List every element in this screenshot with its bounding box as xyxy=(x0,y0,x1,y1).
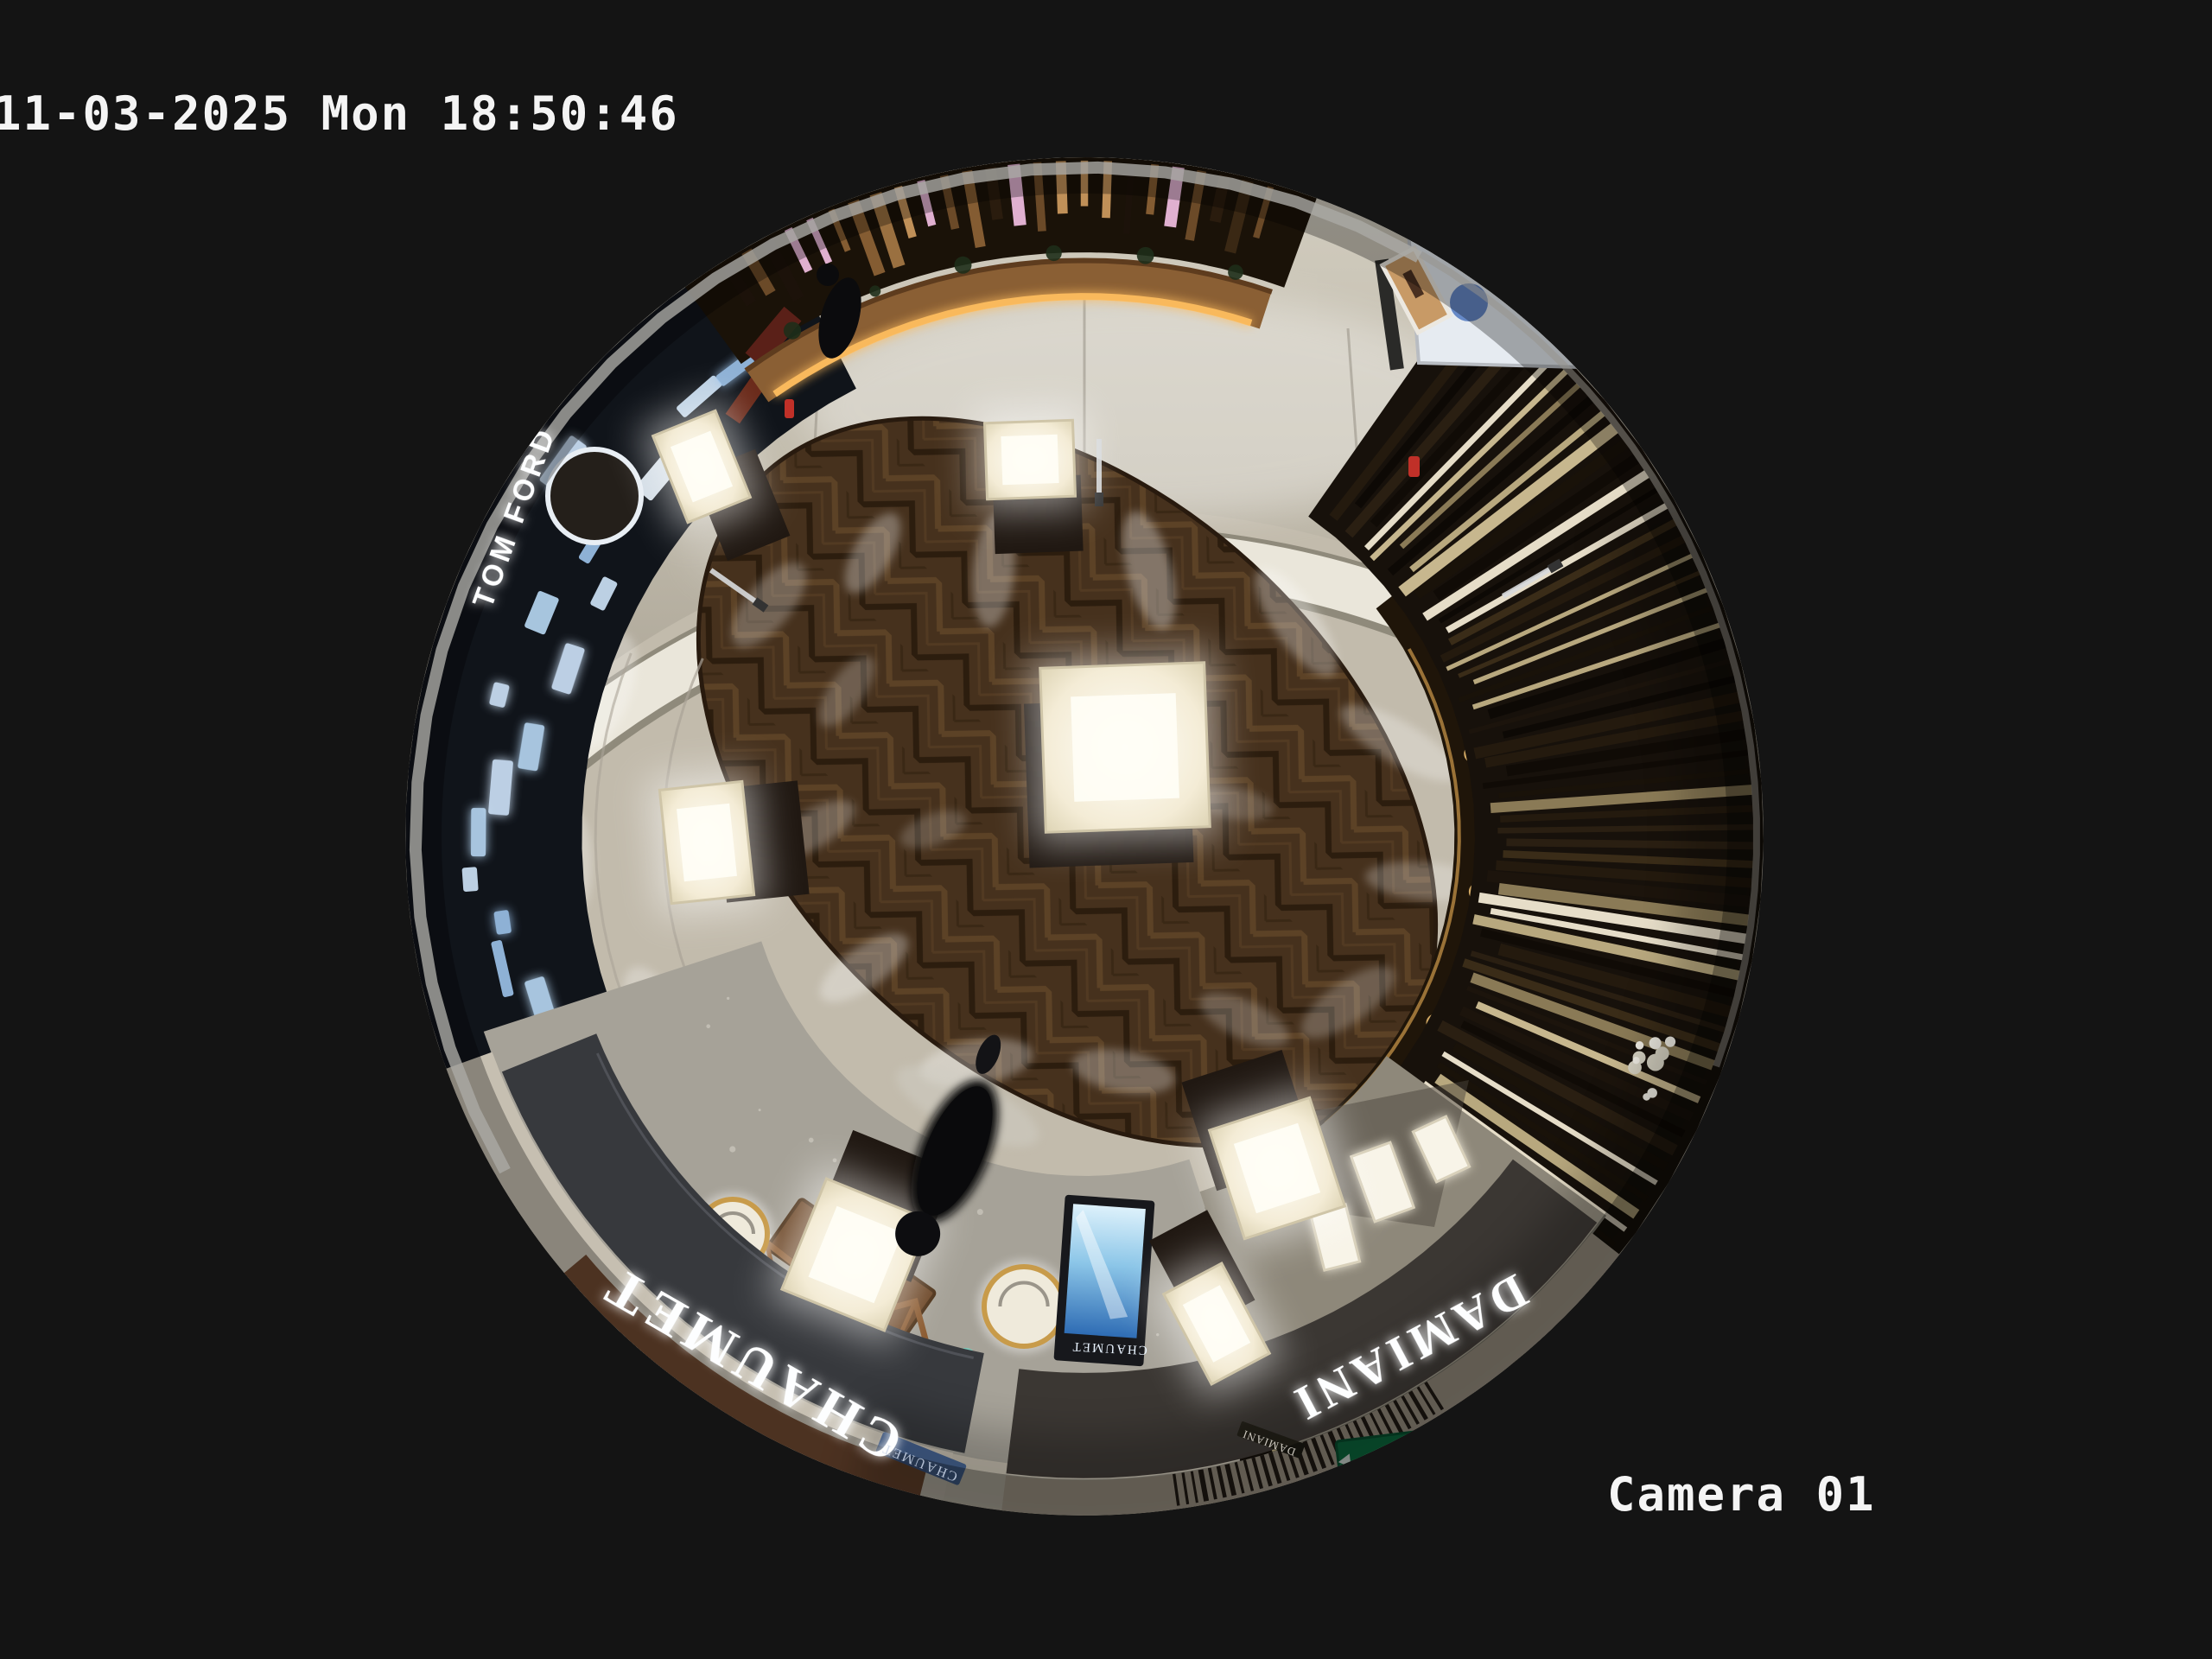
exit-sign-label: EXIT xyxy=(1373,1454,1411,1475)
fisheye-view: TOM FORD CHAUMET DAMIANI CHAUMET CHAUMET… xyxy=(0,0,2212,1659)
osd-timestamp: 11-03-2025 Mon 18:50:46 xyxy=(0,86,679,141)
osd-camera-label: Camera 01 xyxy=(1607,1467,1876,1522)
cctv-monitor: TOM FORD CHAUMET DAMIANI CHAUMET CHAUMET… xyxy=(0,0,2212,1659)
